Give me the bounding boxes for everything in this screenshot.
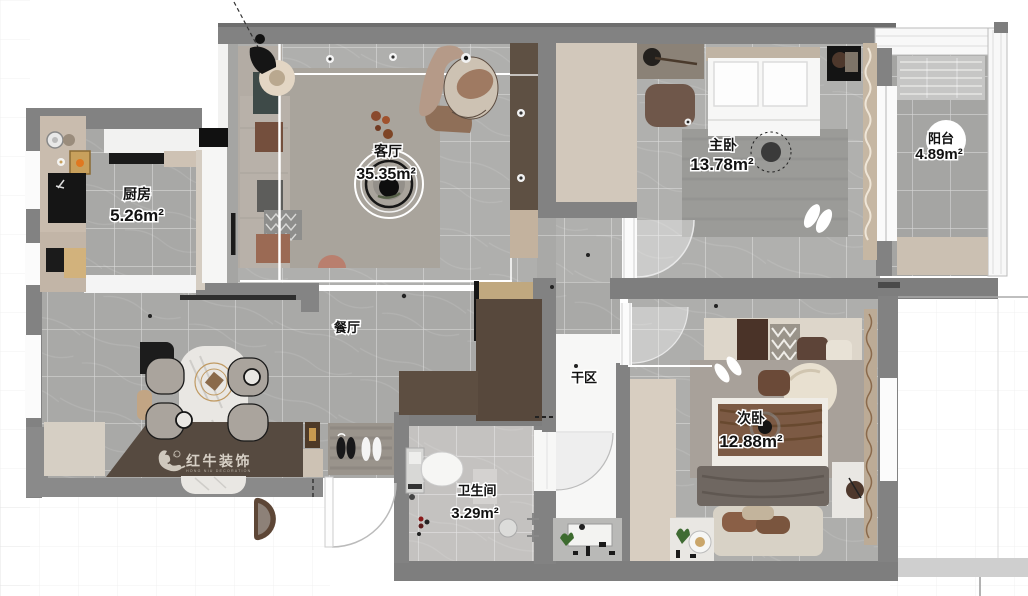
svg-text:客厅: 客厅 — [373, 143, 402, 159]
svg-text:HONG NIU DECORATION: HONG NIU DECORATION — [186, 469, 251, 473]
svg-text:12.88m²: 12.88m² — [719, 432, 783, 451]
svg-text:R: R — [173, 453, 176, 458]
svg-text:次卧: 次卧 — [737, 410, 765, 426]
svg-text:13.78m²: 13.78m² — [690, 155, 754, 174]
svg-text:5.26m²: 5.26m² — [110, 206, 164, 225]
svg-text:卫生间: 卫生间 — [457, 483, 496, 498]
svg-text:餐厅: 餐厅 — [333, 320, 360, 335]
svg-text:厨房: 厨房 — [123, 186, 151, 202]
svg-text:红牛装饰: 红牛装饰 — [186, 453, 252, 469]
svg-text:干区: 干区 — [571, 370, 597, 385]
svg-text:4.89m²: 4.89m² — [915, 146, 963, 163]
svg-text:3.29m²: 3.29m² — [451, 505, 499, 522]
svg-text:35.35m²: 35.35m² — [356, 166, 416, 183]
svg-text:主卧: 主卧 — [709, 137, 737, 153]
svg-text:阳台: 阳台 — [928, 131, 954, 146]
